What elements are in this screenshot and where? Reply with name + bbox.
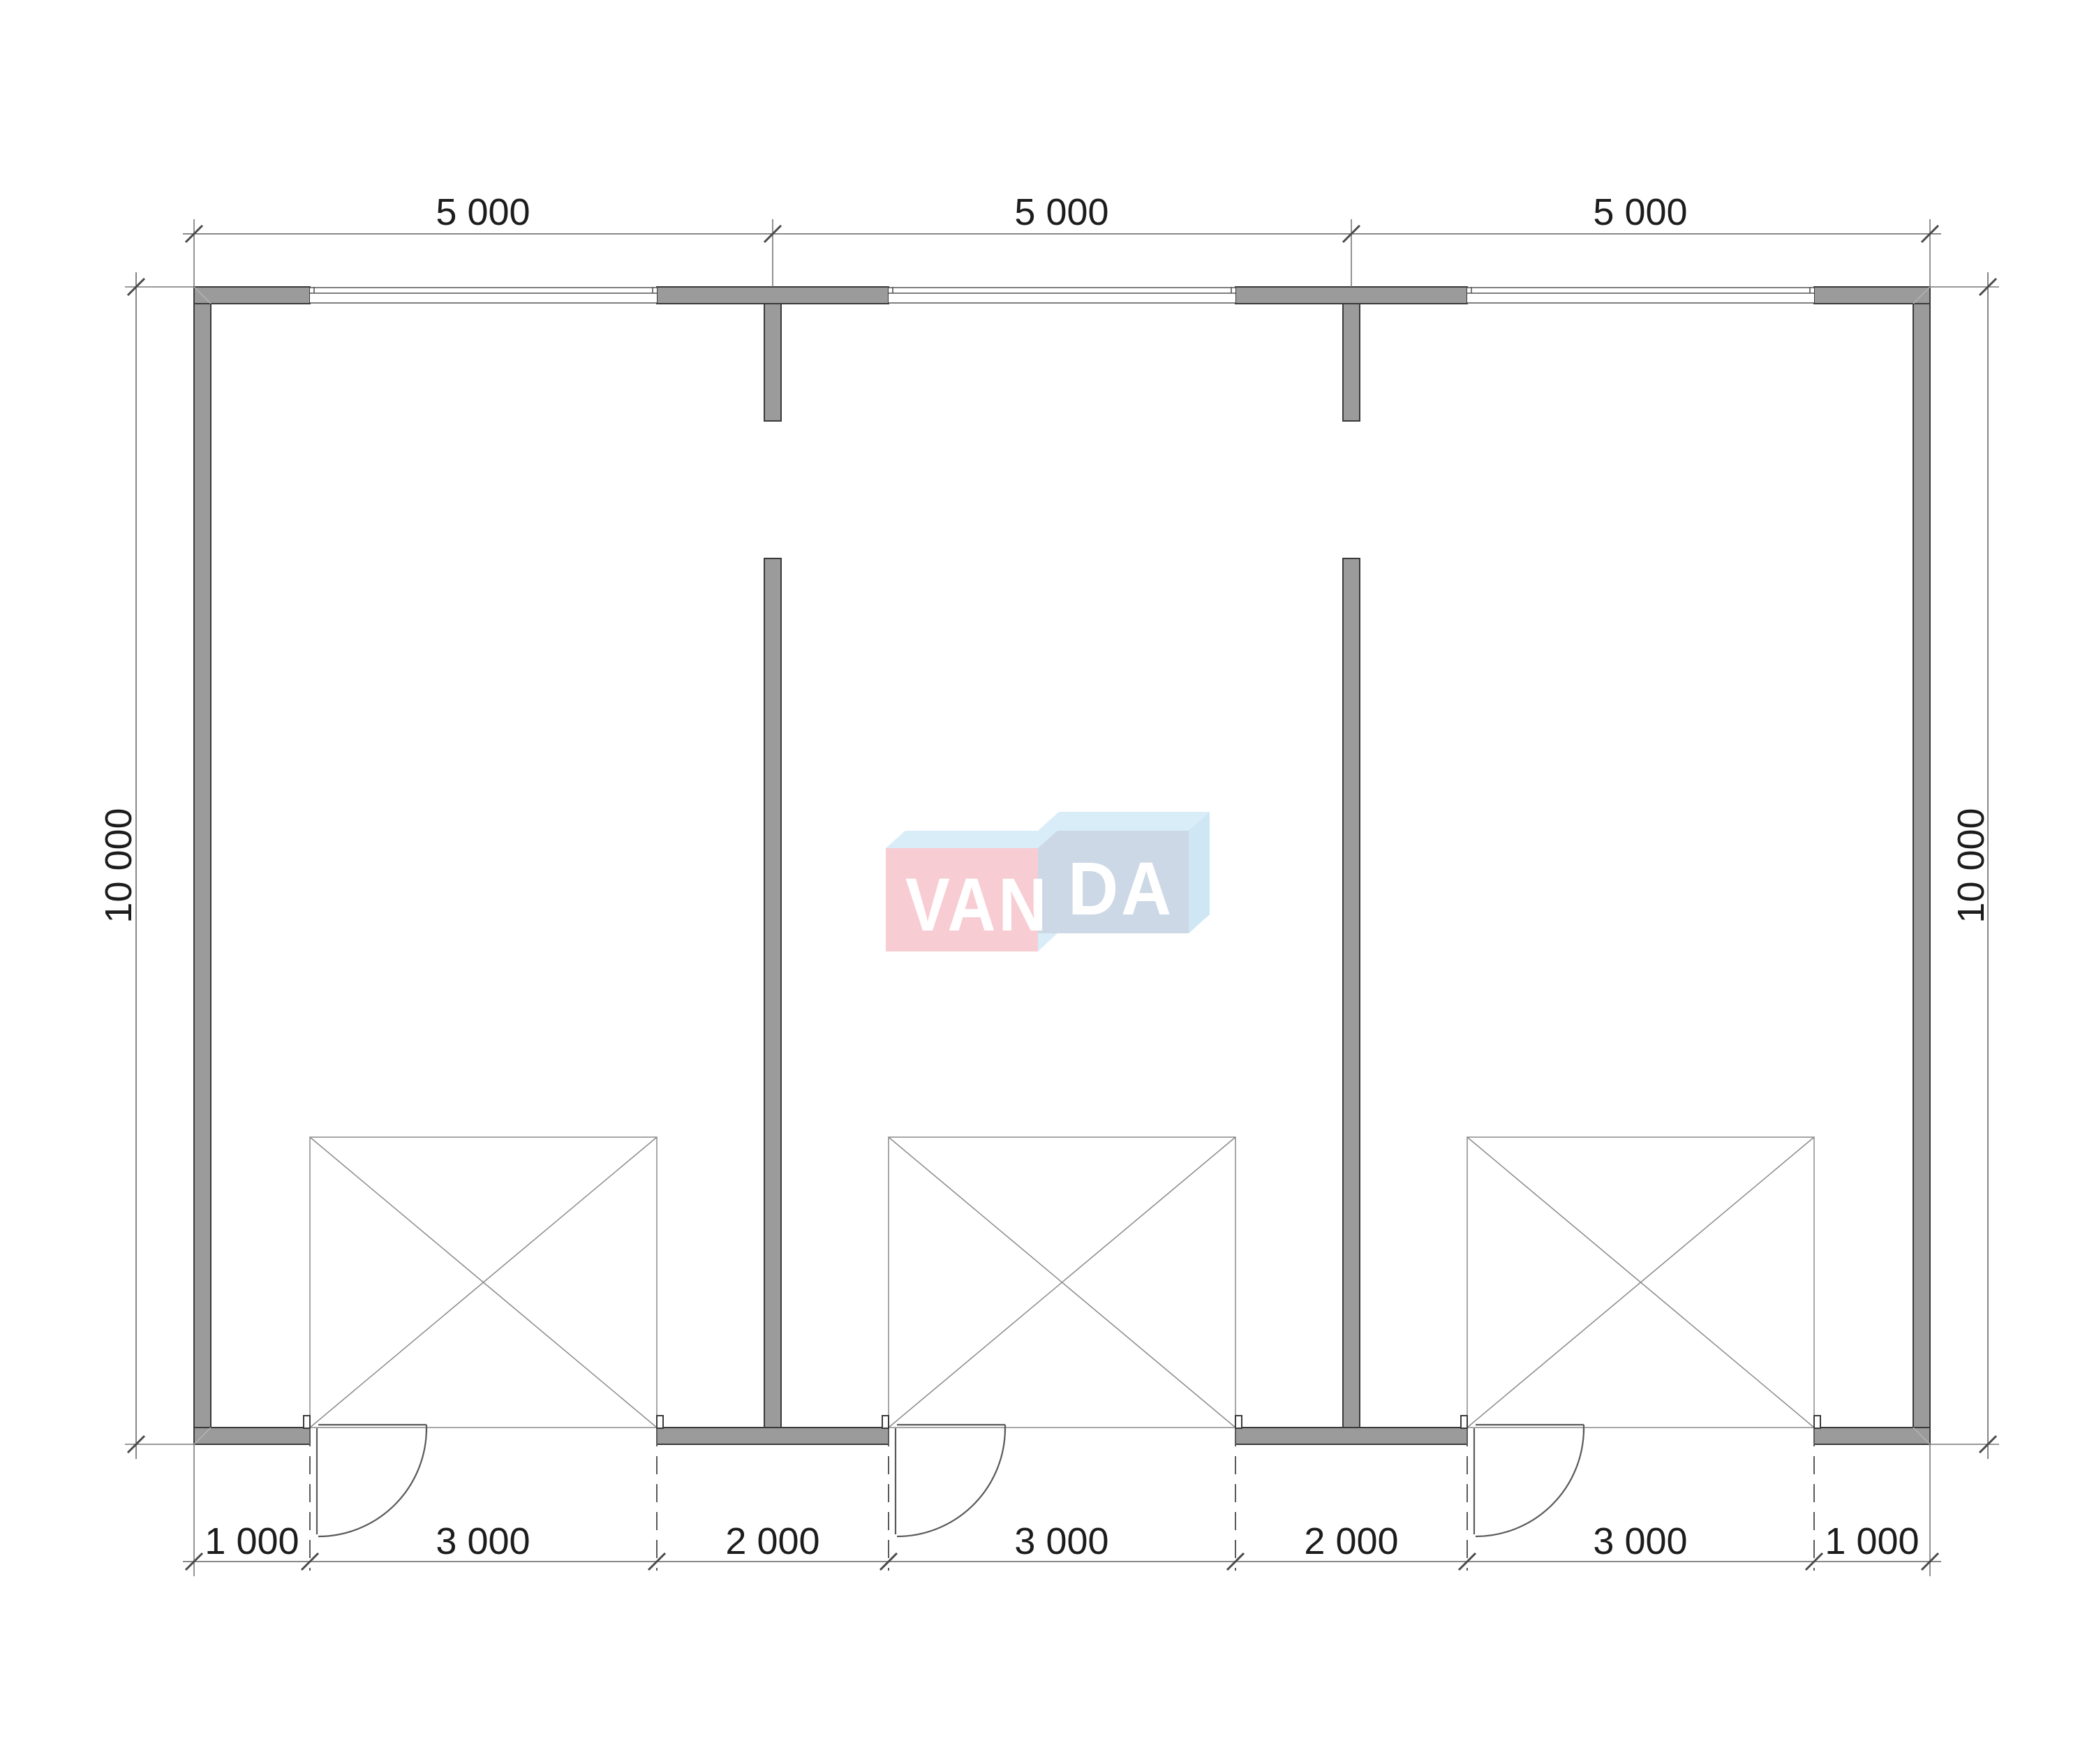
wall-partition-2-lower bbox=[1343, 558, 1360, 1428]
door-3-swing-arc bbox=[1476, 1428, 1584, 1536]
vanda-watermark-logo: VAN DA bbox=[886, 812, 1210, 951]
wall-bottom-pier-1 bbox=[194, 1428, 310, 1444]
dimension-top: 5 000 5 000 5 000 bbox=[183, 191, 1941, 287]
dim-bottom-label-6: 3 000 bbox=[1593, 1520, 1687, 1562]
door-1-swing-arc bbox=[318, 1428, 426, 1536]
window-3-body bbox=[1467, 288, 1814, 303]
dim-top-label-1: 5 000 bbox=[436, 191, 530, 233]
watermark-text-da: DA bbox=[1068, 846, 1174, 931]
garage-door-panel-2 bbox=[889, 1137, 1235, 1428]
watermark-text-van: VAN bbox=[905, 862, 1049, 947]
window-1 bbox=[310, 287, 657, 303]
door-3-left-jamb bbox=[1461, 1416, 1467, 1428]
windows bbox=[310, 287, 1814, 303]
window-2-body bbox=[889, 288, 1235, 303]
dim-bottom-label-5: 2 000 bbox=[1304, 1520, 1398, 1562]
wall-bottom-pier-4 bbox=[1814, 1428, 1930, 1444]
wall-partition-1-lower bbox=[764, 558, 781, 1428]
wall-top-pier-1 bbox=[194, 287, 310, 304]
wall-top-pier-4 bbox=[1814, 287, 1930, 304]
window-2 bbox=[889, 287, 1235, 303]
wall-exterior-right bbox=[1913, 287, 1930, 1444]
dim-bottom-label-3: 2 000 bbox=[725, 1520, 819, 1562]
door-2-left-jamb bbox=[882, 1416, 889, 1428]
garage-door-panel-1 bbox=[310, 1137, 657, 1428]
watermark-blue-top-face bbox=[1038, 812, 1210, 831]
floor-plan-canvas: VAN DA bbox=[0, 0, 2094, 1764]
garage-door-panel-3 bbox=[1467, 1137, 1814, 1428]
dimension-left: 10 000 bbox=[98, 272, 194, 1459]
dimension-bottom: 1 000 3 000 2 000 3 000 2 000 3 000 1 00… bbox=[183, 1444, 1941, 1576]
wall-partition-1-upper bbox=[764, 304, 781, 421]
door-1-left-jamb bbox=[304, 1416, 310, 1428]
window-3 bbox=[1467, 287, 1814, 303]
dim-top-label-3: 5 000 bbox=[1593, 191, 1687, 233]
dim-right-label: 10 000 bbox=[1950, 808, 1992, 923]
dim-bottom-label-7: 1 000 bbox=[1825, 1520, 1919, 1562]
wall-partition-2-upper bbox=[1343, 304, 1360, 421]
wall-bottom-pier-2 bbox=[657, 1428, 889, 1444]
door-2-swing-arc bbox=[897, 1428, 1005, 1536]
door-1-right-jamb bbox=[657, 1416, 663, 1428]
door-3-right-jamb bbox=[1814, 1416, 1820, 1428]
wall-bottom-pier-3 bbox=[1235, 1428, 1467, 1444]
floor-plan-page: VAN DA bbox=[0, 0, 2094, 1764]
dim-bottom-label-4: 3 000 bbox=[1014, 1520, 1108, 1562]
wall-top-pier-3 bbox=[1235, 287, 1467, 304]
wall-top-pier-2 bbox=[657, 287, 889, 304]
dim-bottom-label-2: 3 000 bbox=[436, 1520, 530, 1562]
dim-bottom-label-1: 1 000 bbox=[205, 1520, 299, 1562]
wall-exterior-left bbox=[194, 287, 211, 1444]
dimension-right: 10 000 bbox=[1930, 272, 1999, 1459]
door-2-right-jamb bbox=[1235, 1416, 1242, 1428]
dim-left-label: 10 000 bbox=[98, 808, 140, 923]
watermark-pink-top-face bbox=[886, 831, 1057, 848]
window-1-body bbox=[310, 288, 657, 303]
dim-top-label-2: 5 000 bbox=[1014, 191, 1108, 233]
garage-door-panels bbox=[310, 1137, 1814, 1428]
watermark-blue-side-face bbox=[1189, 812, 1210, 933]
